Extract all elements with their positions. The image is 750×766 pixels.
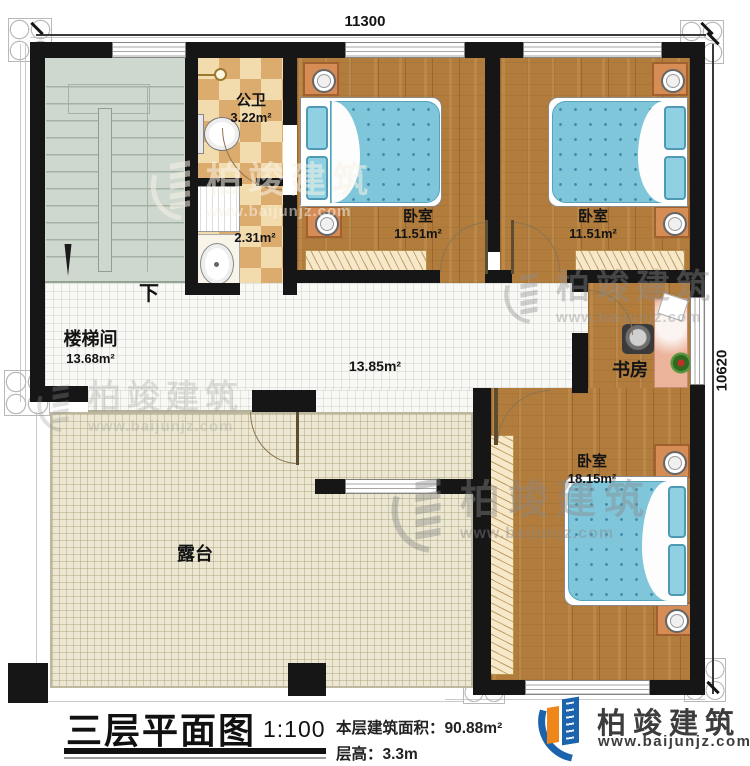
lamp-icon [661,69,685,93]
plant-icon [670,352,692,374]
nightstand [652,62,688,96]
room-area: 13.68m² [33,351,148,367]
door-leaf [494,388,498,445]
lamp-icon [663,212,687,236]
dimension-top: 11300 [315,13,415,30]
nightstand [654,206,690,238]
room-area: 11.51m² [358,226,478,242]
wall-segment [473,680,525,695]
wall-segment [30,386,88,402]
wall-segment [437,479,473,494]
hallway-floor-patch [88,390,252,412]
window [523,42,662,58]
pillow-icon [306,106,328,150]
room-label-hallway: 13.85m² [330,358,420,375]
hallway-terrace-boundary [88,410,252,412]
room-name: 公卫 [211,92,291,110]
stair-hall-boundary [45,281,185,283]
room-label-terrace: 露台 [155,544,235,566]
lamp-icon [315,212,339,236]
wall-segment [186,42,345,58]
window [525,680,650,695]
down-text: 下 [139,283,159,305]
plan-title: 三层平面图 [66,702,256,754]
terrace-column [8,663,48,703]
wall-segment [473,388,491,680]
wall-segment [567,270,690,283]
window [690,297,705,385]
room-area: 11.51m² [533,226,653,242]
lamp-icon [312,69,336,93]
room-name: 楼梯间 [33,329,148,351]
dimension-right: 10620 [714,336,731,406]
room-name: 卧室 [532,453,652,471]
wall-segment [650,680,705,695]
title-underline-thin [64,757,326,759]
logo-building-orange [547,706,559,744]
wall-segment [297,270,440,283]
wall-segment [315,479,345,494]
brand-website: www.baijunjz.com [598,733,750,750]
door-leaf [296,412,299,465]
floor-plan-canvas: 公卫 3.22m² 2.31m² 卧室 11.51m² 卧室 11.51m² 下… [0,0,750,766]
floor-area-text: 本层建筑面积：90.88m² [336,716,502,738]
washer-icon [194,186,240,232]
terrace-column [288,663,326,696]
logo-building-blue [562,697,579,746]
wall-segment [690,385,705,695]
nightstand [656,602,692,636]
pillow-icon [664,156,686,200]
wall-segment [252,390,316,412]
stair-railing [98,108,112,272]
pillow-icon [306,156,328,200]
room-name: 卧室 [533,208,653,226]
brand-logo-icon [534,697,590,755]
wall-segment [465,42,523,58]
sill-line-left-inner [25,44,26,402]
nightstand [306,206,342,238]
room-label-study: 书房 [600,360,660,382]
window [112,42,186,58]
wall-segment [572,333,588,393]
nightstand [303,62,339,96]
sill-line-left-outer [20,44,21,402]
room-label-bedroom3: 卧室 18.15m² [532,453,652,487]
light-fixture-icon [214,68,227,81]
pillow-icon [668,486,686,538]
wall-segment [485,270,512,283]
room-area: 3.22m² [211,110,291,126]
room-name: 书房 [600,360,660,382]
stair-down-label: 下 [134,282,164,306]
wall-segment [690,42,705,297]
pillow-icon [664,106,686,150]
terrace-outer-line-left [36,412,37,702]
lamp-icon [665,609,689,633]
room-label-stairwell: 楼梯间 13.68m² [33,329,148,366]
title-underline [64,748,326,754]
room-label-bedroom2: 卧室 11.51m² [533,208,653,242]
room-area: 13.85m² [349,358,401,374]
wardrobe [490,435,514,675]
room-label-bathroom-sub: 2.31m² [215,230,295,246]
wall-segment [185,283,240,295]
sill-line-top [30,37,706,38]
lamp-icon [663,451,687,475]
door-leaf [485,220,488,274]
terrace-floor [50,412,473,688]
pillow-icon [668,544,686,596]
room-label-bedroom1: 卧室 11.51m² [358,208,478,242]
wall-segment [572,283,588,292]
nightstand [654,444,690,478]
wall-segment [185,58,198,295]
room-name: 卧室 [358,208,478,226]
room-area: 2.31m² [215,230,295,246]
room-name: 露台 [155,544,235,566]
plan-scale: 1:100 [263,716,326,743]
window [345,42,465,58]
floor-height-text: 层高：3.3m [336,742,418,764]
room-area: 18.15m² [532,471,652,487]
room-label-bathroom: 公卫 3.22m² [211,92,291,126]
window [345,479,437,494]
door-leaf [511,220,514,274]
dimension-line-top [36,34,706,36]
basin-drain-icon [214,262,219,267]
